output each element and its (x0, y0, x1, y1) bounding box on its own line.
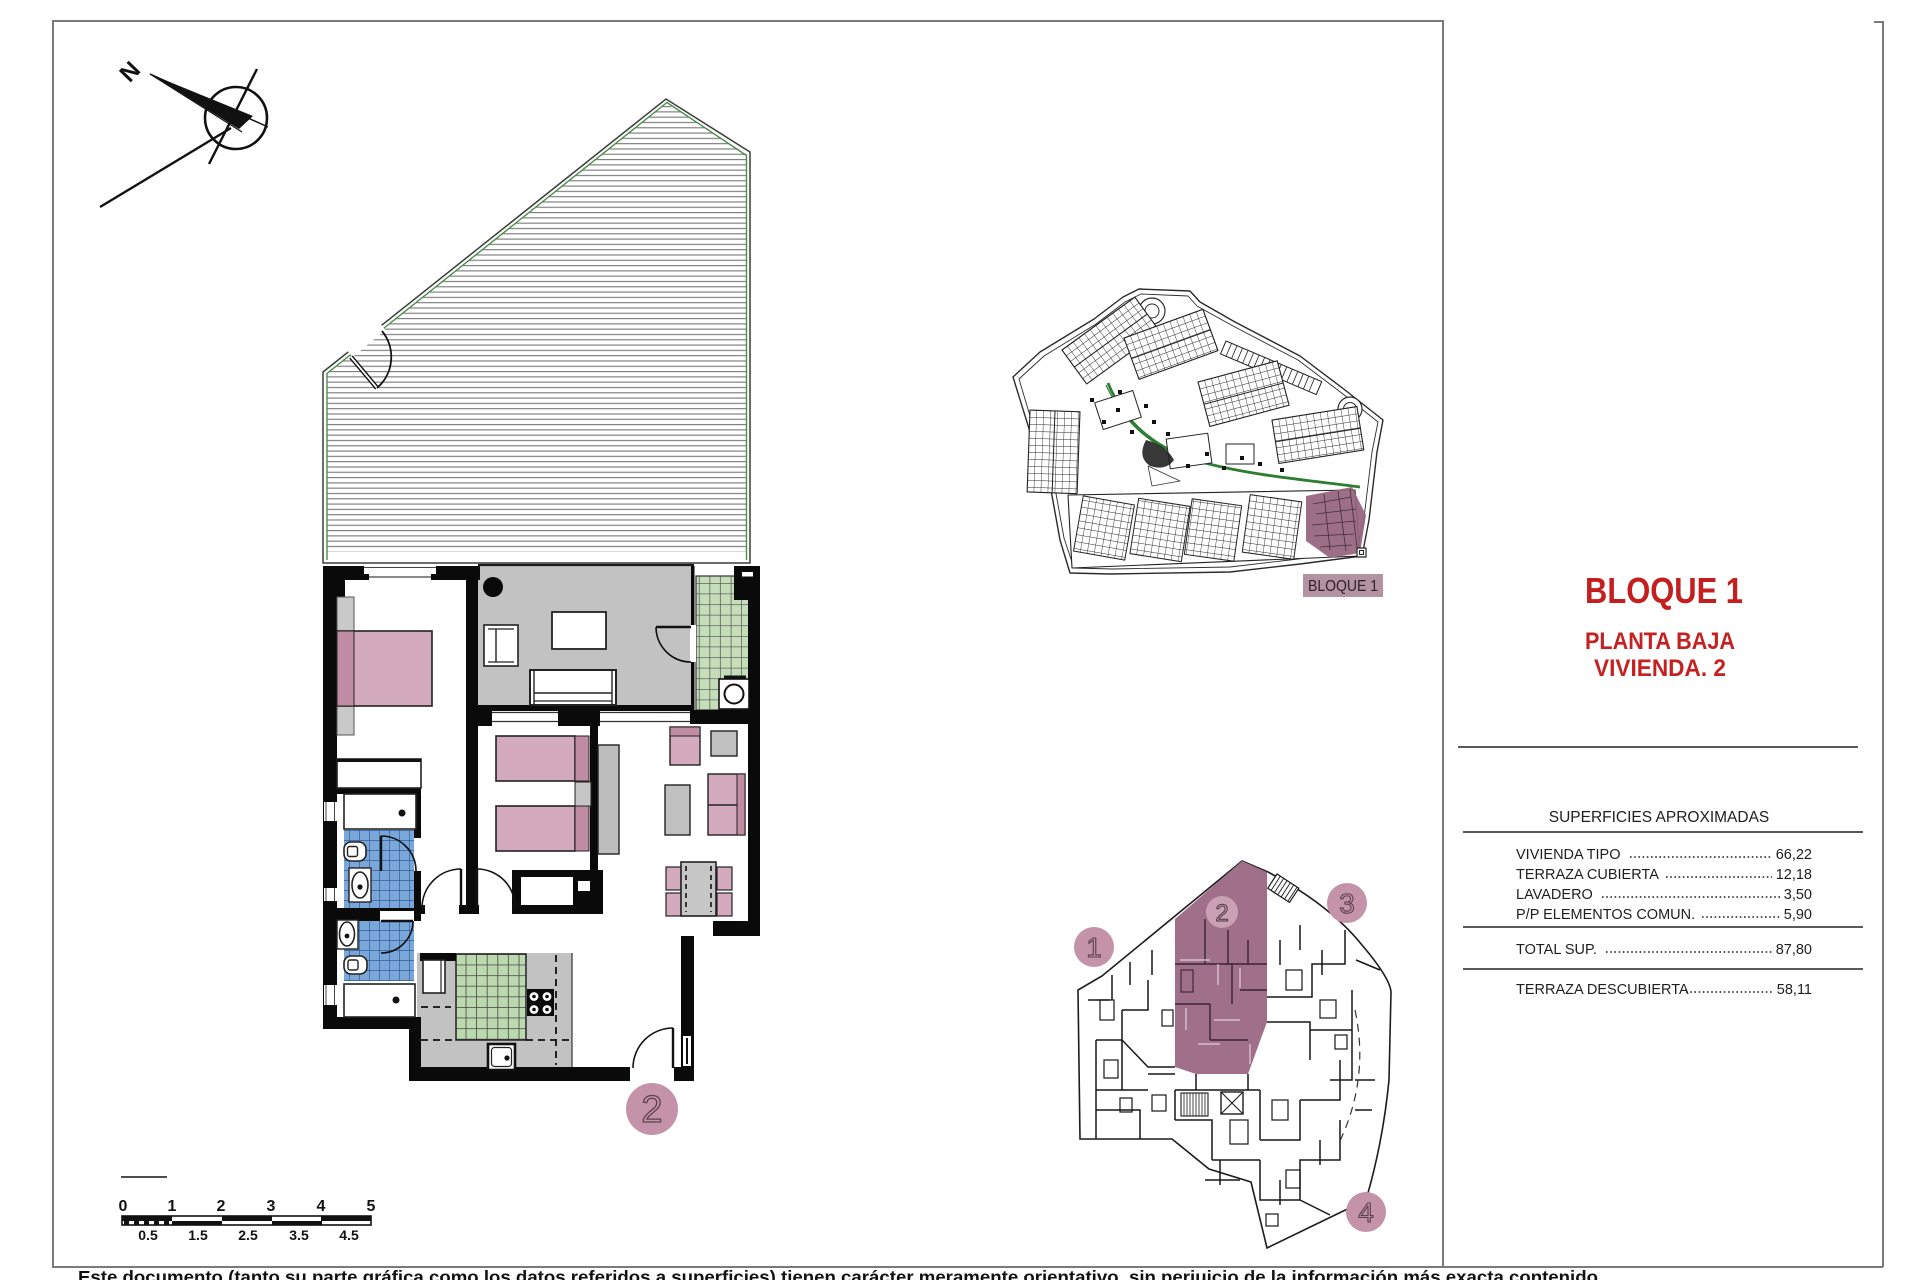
svg-text:VIVIENDA TIPO: VIVIENDA TIPO (1516, 847, 1621, 863)
svg-text:LAVADERO: LAVADERO (1516, 887, 1593, 903)
svg-text:N: N (115, 56, 146, 87)
svg-text:87,80: 87,80 (1776, 942, 1812, 958)
svg-text:Este documento (tanto su parte: Este documento (tanto su parte gráfica c… (78, 1267, 1598, 1280)
svg-text:1: 1 (168, 1198, 177, 1215)
svg-text:VIVIENDA. 2: VIVIENDA. 2 (1594, 655, 1726, 682)
svg-text:1: 1 (1086, 932, 1102, 963)
svg-text:3.5: 3.5 (289, 1227, 309, 1243)
svg-text:5,90: 5,90 (1784, 907, 1812, 923)
svg-text:3: 3 (267, 1198, 276, 1215)
svg-text:2: 2 (1215, 900, 1228, 927)
svg-text:2: 2 (217, 1198, 226, 1215)
svg-text:P/P ELEMENTOS COMUN.: P/P ELEMENTOS COMUN. (1516, 907, 1695, 923)
svg-text:2: 2 (641, 1089, 662, 1131)
svg-text:TERRAZA DESCUBIERTA: TERRAZA DESCUBIERTA (1516, 982, 1689, 998)
svg-text:PLANTA BAJA: PLANTA BAJA (1585, 628, 1735, 655)
svg-text:TERRAZA CUBIERTA: TERRAZA CUBIERTA (1516, 867, 1659, 883)
svg-text:3: 3 (1339, 888, 1355, 919)
svg-text:12,18: 12,18 (1776, 867, 1812, 883)
svg-text:1.5: 1.5 (188, 1227, 208, 1243)
svg-text:4: 4 (1358, 1197, 1374, 1228)
svg-text:2.5: 2.5 (238, 1227, 258, 1243)
svg-text:0: 0 (119, 1198, 128, 1215)
svg-text:BLOQUE 1: BLOQUE 1 (1585, 570, 1743, 611)
svg-text:66,22: 66,22 (1776, 847, 1812, 863)
svg-text:0.5: 0.5 (138, 1227, 158, 1243)
svg-text:SUPERFICIES APROXIMADAS: SUPERFICIES APROXIMADAS (1549, 809, 1770, 826)
svg-text:TOTAL SUP.: TOTAL SUP. (1516, 942, 1597, 958)
svg-text:3,50: 3,50 (1784, 887, 1812, 903)
svg-text:BLOQUE 1: BLOQUE 1 (1308, 578, 1378, 595)
svg-text:4: 4 (317, 1198, 326, 1215)
svg-text:58,11: 58,11 (1777, 982, 1812, 998)
svg-text:4.5: 4.5 (339, 1227, 359, 1243)
svg-text:5: 5 (367, 1198, 376, 1215)
